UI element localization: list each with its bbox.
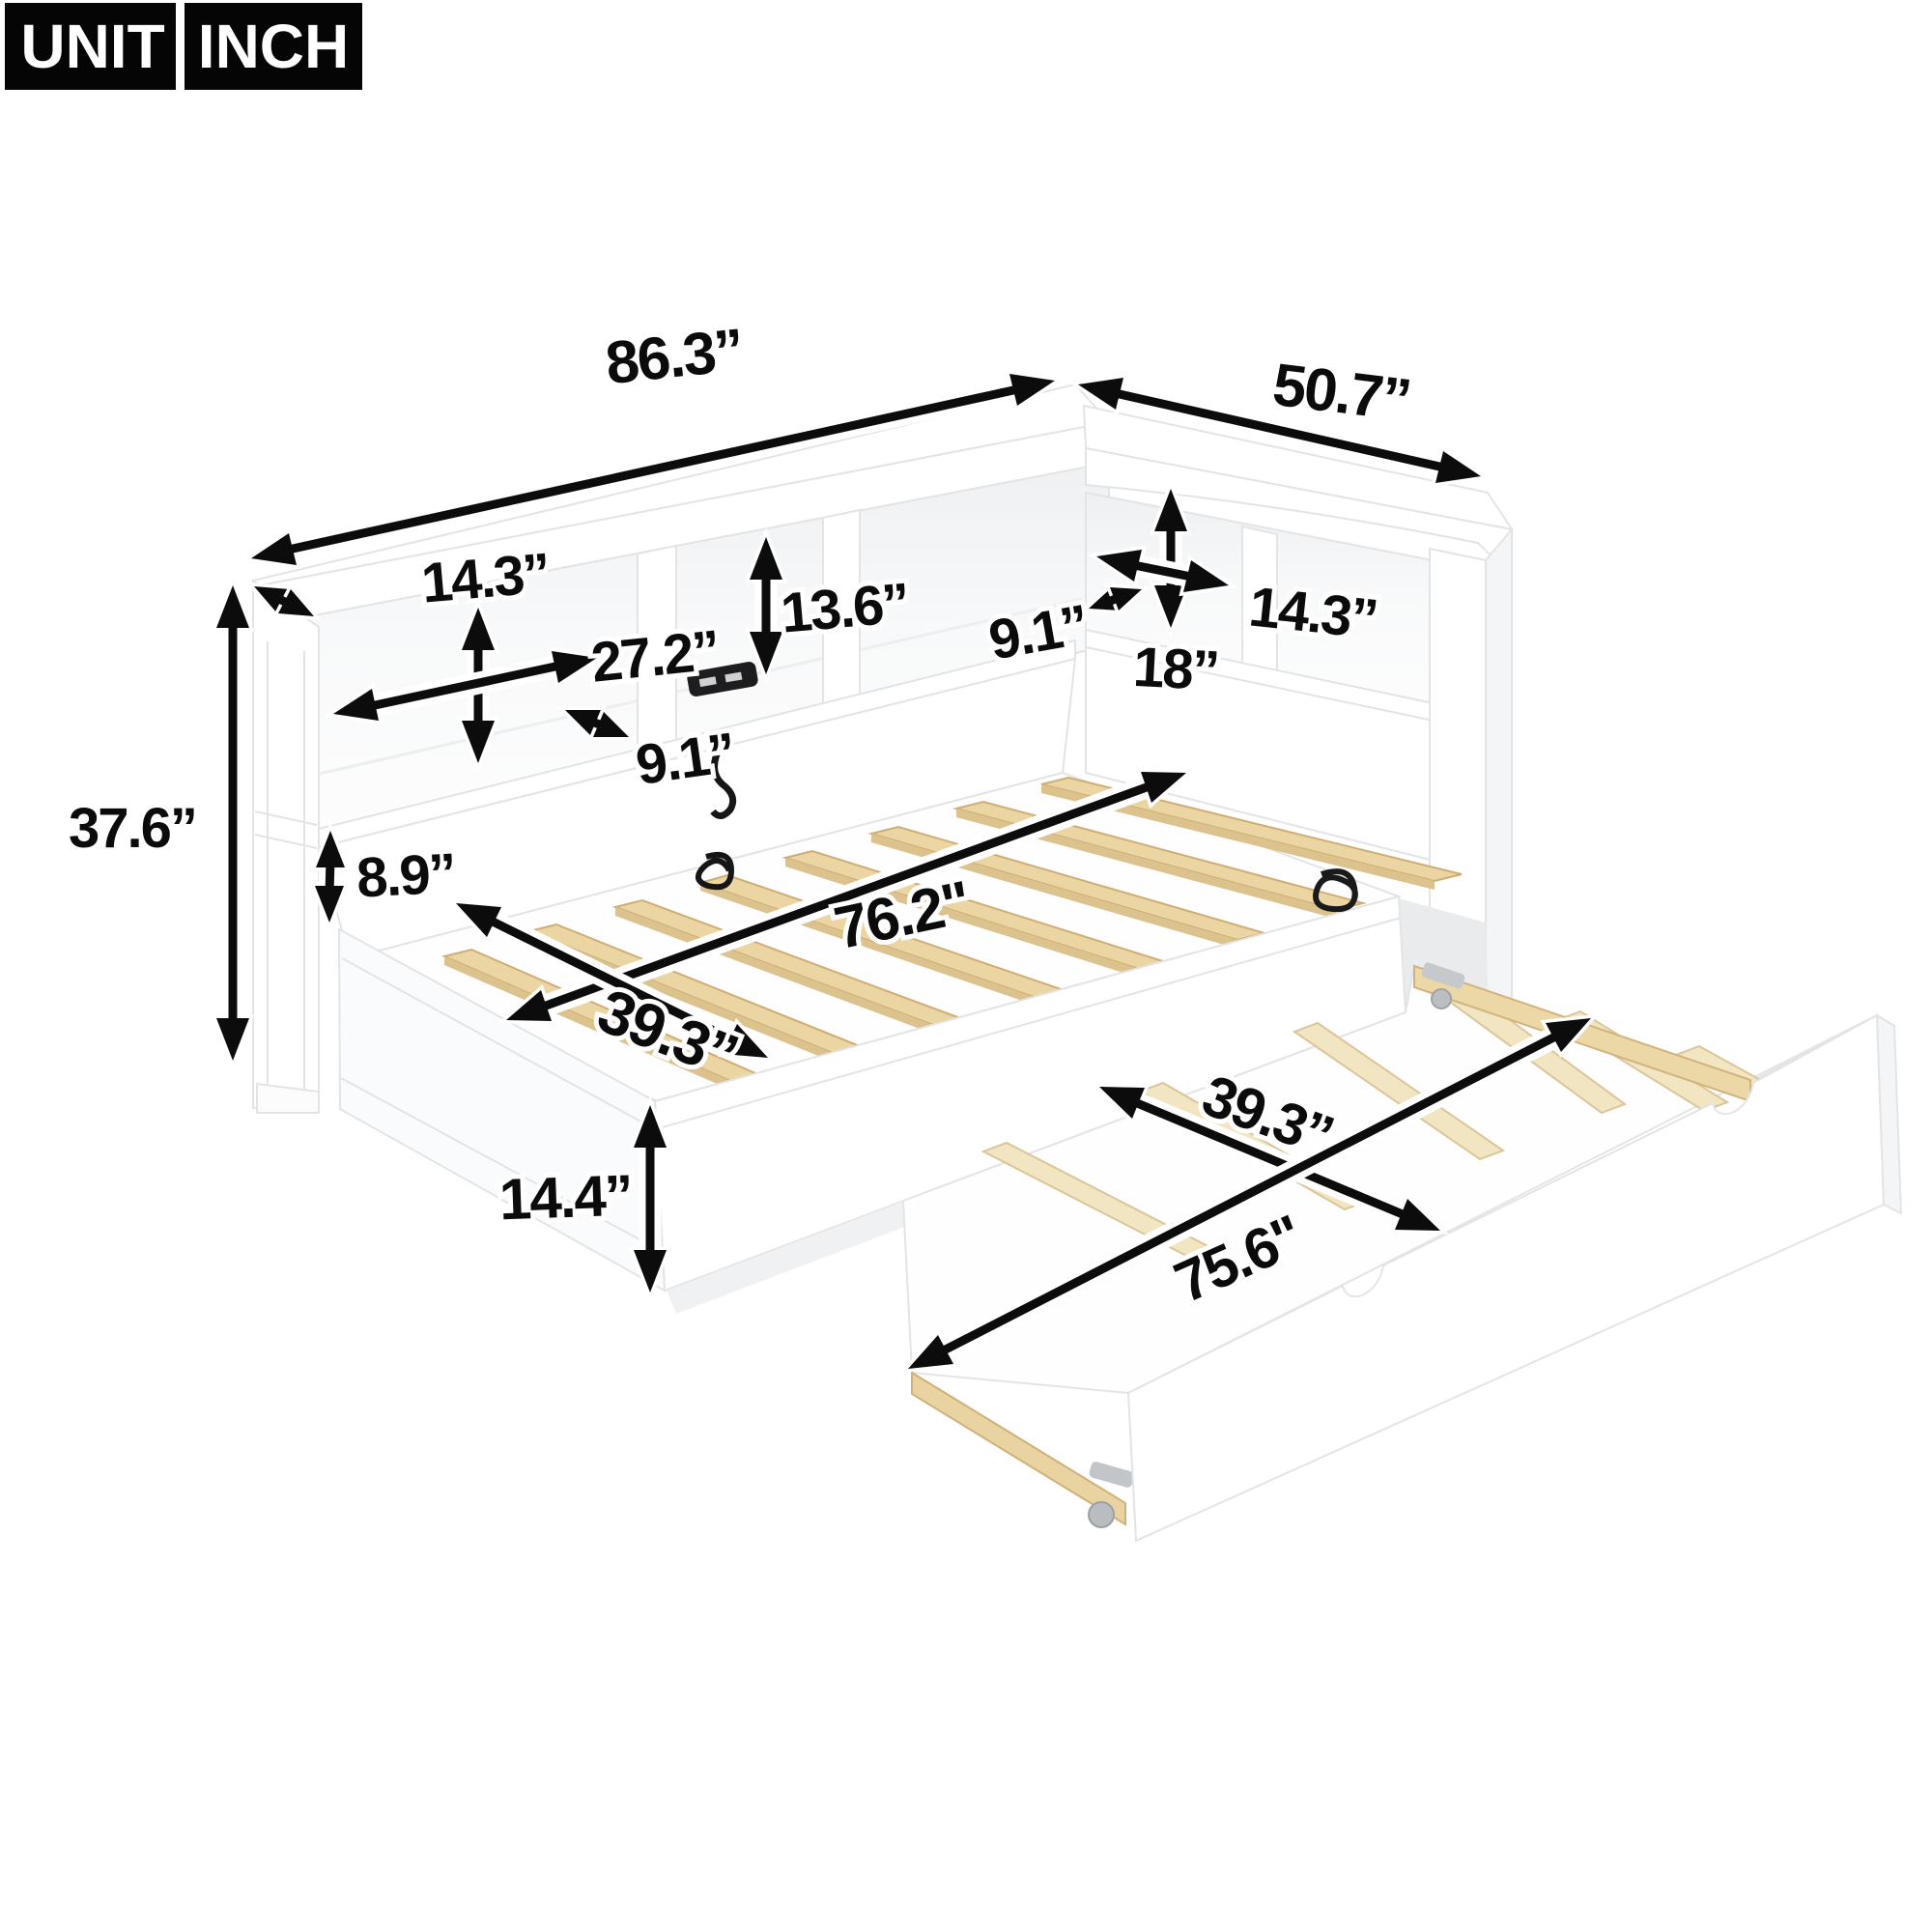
svg-text:86.3”: 86.3” [603,317,746,397]
svg-text:INCH: INCH [198,12,349,81]
svg-text:14.3”: 14.3” [419,541,552,614]
svg-text:14.4”: 14.4” [498,1163,633,1233]
svg-text:8.9”: 8.9” [355,841,457,909]
svg-text:14.3”: 14.3” [1246,575,1379,650]
svg-text:27.2”: 27.2” [588,618,722,694]
svg-text:18”: 18” [1132,636,1220,702]
svg-text:13.6”: 13.6” [779,571,911,644]
svg-text:UNIT: UNIT [20,12,164,81]
svg-text:37.6”: 37.6” [69,797,196,860]
